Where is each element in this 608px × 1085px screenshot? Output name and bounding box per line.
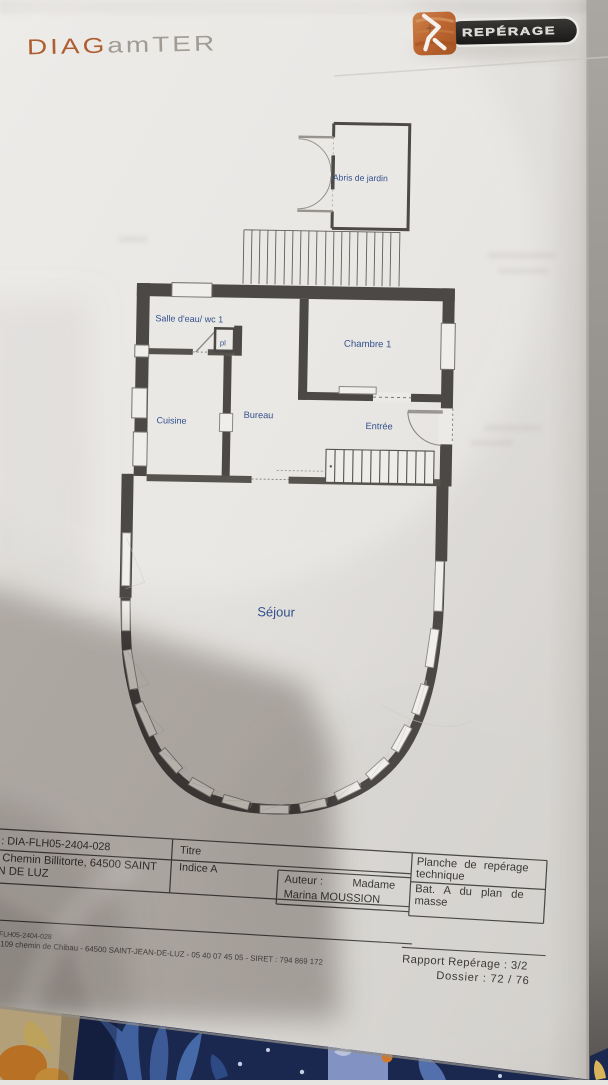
svg-text:pl: pl bbox=[220, 338, 226, 347]
svg-text:DIAGamTER: DIAGamTER bbox=[27, 31, 218, 59]
svg-text:Bureau: Bureau bbox=[244, 410, 274, 421]
svg-text:Séjour: Séjour bbox=[257, 604, 296, 620]
svg-text:Chambre 1: Chambre 1 bbox=[344, 339, 392, 351]
svg-text:REPÉRAGE: REPÉRAGE bbox=[462, 24, 556, 39]
svg-text:Entrée: Entrée bbox=[365, 421, 392, 431]
svg-text:Abris de jardin: Abris de jardin bbox=[333, 172, 388, 183]
svg-text:Salle d'eau/ wc 1: Salle d'eau/ wc 1 bbox=[155, 313, 223, 324]
svg-text:Cuisine: Cuisine bbox=[157, 415, 187, 426]
svg-text:Madame: Madame bbox=[352, 877, 395, 891]
svg-text:masse: masse bbox=[414, 895, 448, 909]
